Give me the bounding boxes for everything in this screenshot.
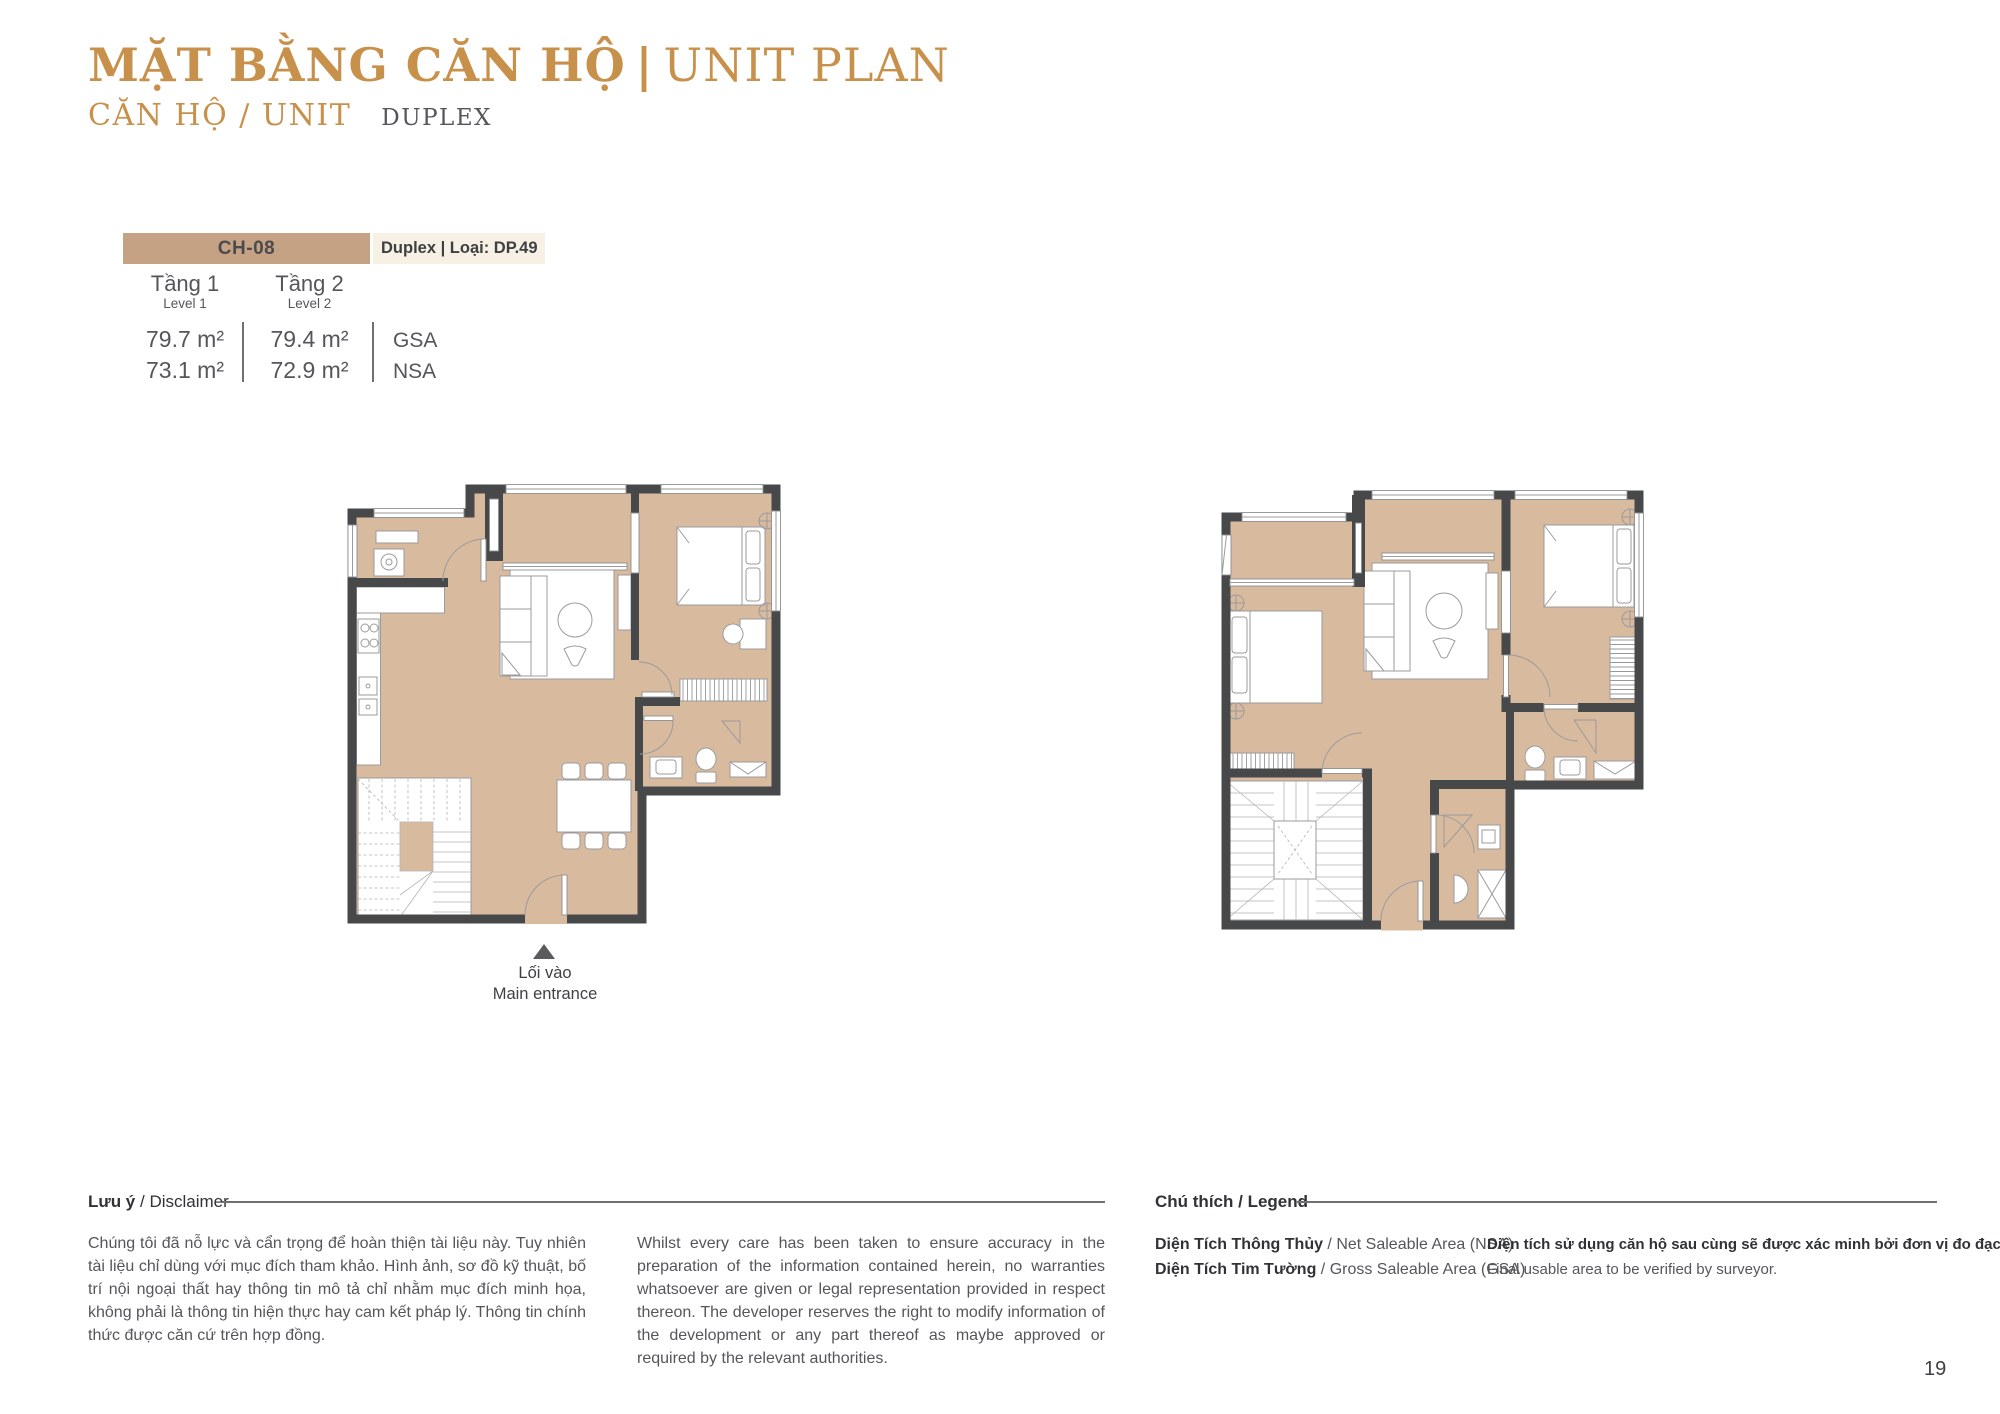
disclaimer-text-en: Whilst every care has been taken to ensu… xyxy=(637,1232,1105,1370)
level-2-column-header: Tầng 2 Level 2 xyxy=(247,272,372,311)
disclaimer-text-vi: Chúng tôi đã nỗ lực và cẩn trọng để hoàn… xyxy=(88,1232,586,1347)
table-divider xyxy=(372,322,374,382)
legend-rule xyxy=(1297,1201,1937,1203)
level-2-name-en: Level 2 xyxy=(247,296,372,311)
subtitle-value: DUPLEX xyxy=(381,105,492,131)
legend-item-gsa-vi: Diện Tích Tim Tường xyxy=(1155,1261,1316,1278)
page-subtitle: CĂN HỘ / UNITDUPLEX xyxy=(88,98,492,133)
legend-heading-sep: / xyxy=(1233,1192,1247,1211)
legend-item-nsa-sep: / xyxy=(1323,1236,1336,1253)
page-title-en: UNIT PLAN xyxy=(663,38,949,92)
disclaimer-heading-sep: / xyxy=(135,1192,149,1211)
nsa-label: NSA xyxy=(393,360,436,384)
level-2-nsa-value: 72.9 m² xyxy=(247,357,372,384)
disclaimer-heading: Lưu ý / Disclaimer xyxy=(88,1192,229,1212)
disclaimer-rule xyxy=(222,1201,1105,1203)
unit-code-badge: CH-08 xyxy=(123,233,370,264)
entrance-label: Lối vào Main entrance xyxy=(455,963,635,1005)
legend-item-gsa-sep: / xyxy=(1316,1261,1329,1278)
legend-note-en: Final usable area to be verified by surv… xyxy=(1487,1257,1992,1282)
entrance-arrow-icon xyxy=(533,944,555,959)
legend-heading-vi: Chú thích xyxy=(1155,1192,1233,1211)
level-1-column-header: Tầng 1 Level 1 xyxy=(123,272,247,311)
page-title: MẶT BẰNG CĂN HỘ|UNIT PLAN xyxy=(88,38,950,92)
gsa-label: GSA xyxy=(393,329,437,353)
level-2-floor-plan xyxy=(1222,485,1647,930)
level-1-name-vi: Tầng 1 xyxy=(123,272,247,296)
entrance-label-en: Main entrance xyxy=(455,984,635,1005)
page-title-vi: MẶT BẰNG CĂN HỘ xyxy=(88,38,626,92)
table-divider xyxy=(242,322,244,382)
legend-item-nsa-vi: Diện Tích Thông Thủy xyxy=(1155,1236,1323,1253)
title-divider: | xyxy=(626,38,664,92)
brochure-page: MẶT BẰNG CĂN HỘ|UNIT PLAN CĂN HỘ / UNITD… xyxy=(0,0,2000,1414)
level-1-gsa-value: 79.7 m² xyxy=(123,326,247,353)
entrance-label-vi: Lối vào xyxy=(455,963,635,984)
page-number: 19 xyxy=(1924,1358,1946,1381)
legend-note-vi: Diện tích sử dụng căn hộ sau cùng sẽ đượ… xyxy=(1487,1232,1992,1257)
level-1-floor-plan xyxy=(348,483,780,925)
level-2-name-vi: Tầng 2 xyxy=(247,272,372,296)
legend-note: Diện tích sử dụng căn hộ sau cùng sẽ đượ… xyxy=(1487,1232,1992,1282)
subtitle-label: CĂN HỘ / UNIT xyxy=(88,98,351,133)
legend-heading: Chú thích / Legend xyxy=(1155,1192,1308,1212)
level-1-nsa-value: 73.1 m² xyxy=(123,357,247,384)
level-1-name-en: Level 1 xyxy=(123,296,247,311)
disclaimer-heading-en: Disclaimer xyxy=(149,1192,228,1211)
level-2-gsa-value: 79.4 m² xyxy=(247,326,372,353)
unit-type-badge: Duplex | Loại: DP.49 xyxy=(373,233,545,264)
disclaimer-heading-vi: Lưu ý xyxy=(88,1192,135,1211)
